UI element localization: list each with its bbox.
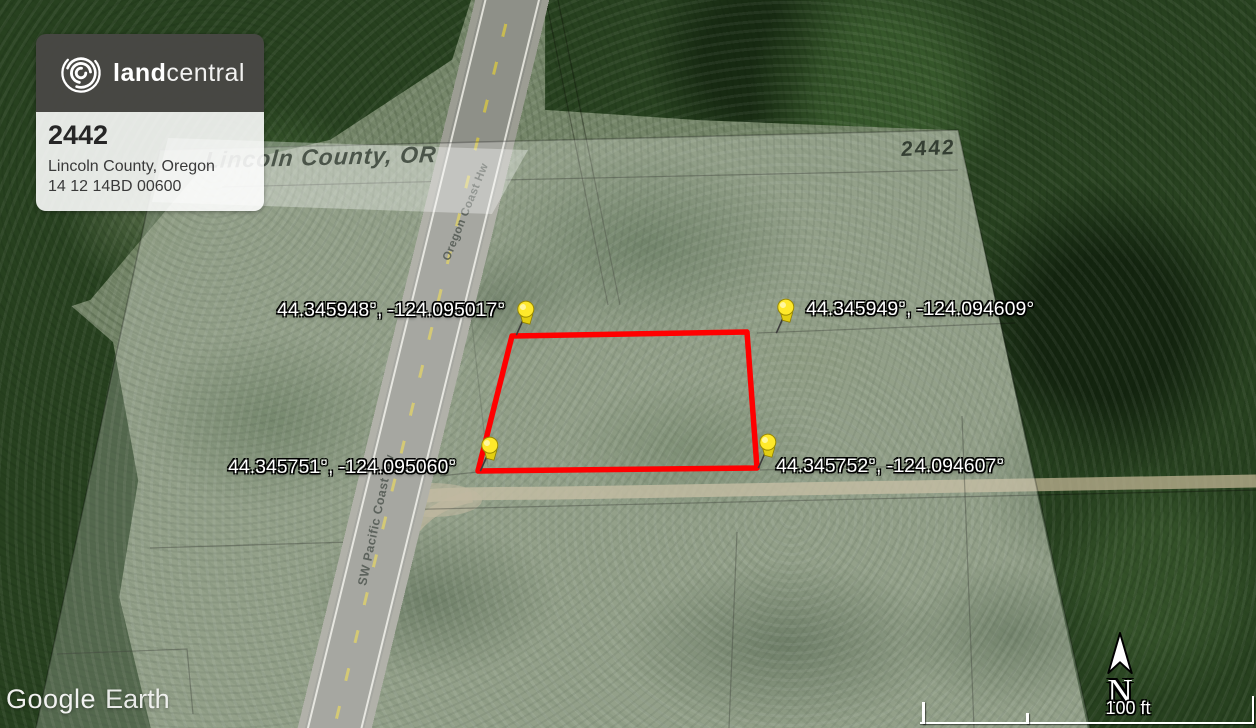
map-viewport[interactable]: Oregon Coast Hw SW Pacific Coast Hw Linc… <box>0 0 1256 728</box>
pushpin-southwest-icon[interactable] <box>471 434 506 474</box>
scale-bar-line <box>920 722 1254 725</box>
scale-bar-tick <box>1026 713 1029 724</box>
coordinate-label-northwest: 44.345948°, -124.095017° <box>277 299 505 322</box>
parcel-id: 2442 <box>48 120 252 151</box>
google-earth-watermark: GoogleEarth <box>6 684 170 715</box>
watermark-google: Google <box>6 684 96 714</box>
parcel-location: Lincoln County, Oregon <box>48 157 252 177</box>
card-body: 2442 Lincoln County, Oregon 14 12 14BD 0… <box>36 112 264 211</box>
parcel-info-card: landcentral 2442 Lincoln County, Oregon … <box>36 34 264 211</box>
card-header: landcentral <box>36 34 264 112</box>
brand-central: central <box>166 59 245 87</box>
scale-bar: 100 ft <box>920 694 1256 728</box>
brand-land: land <box>113 59 166 87</box>
pushpin-northeast-icon[interactable] <box>767 296 802 336</box>
coordinate-label-southwest: 44.345751°, -124.095060° <box>228 456 456 479</box>
north-arrow-icon <box>1105 632 1135 677</box>
pushpin-northwest-icon[interactable] <box>507 298 542 338</box>
coordinate-label-southeast: 44.345752°, -124.094607° <box>776 455 1004 478</box>
scale-bar-tick <box>922 702 925 724</box>
scale-bar-label: 100 ft <box>1105 698 1150 719</box>
scale-bar-tick <box>1252 696 1255 724</box>
watermark-earth: Earth <box>105 684 170 714</box>
parcel-apn: 14 12 14BD 00600 <box>48 177 252 197</box>
brand-wordmark: landcentral <box>113 59 245 88</box>
coordinate-label-northeast: 44.345949°, -124.094609° <box>806 298 1034 321</box>
landcentral-logo-icon <box>60 52 102 94</box>
